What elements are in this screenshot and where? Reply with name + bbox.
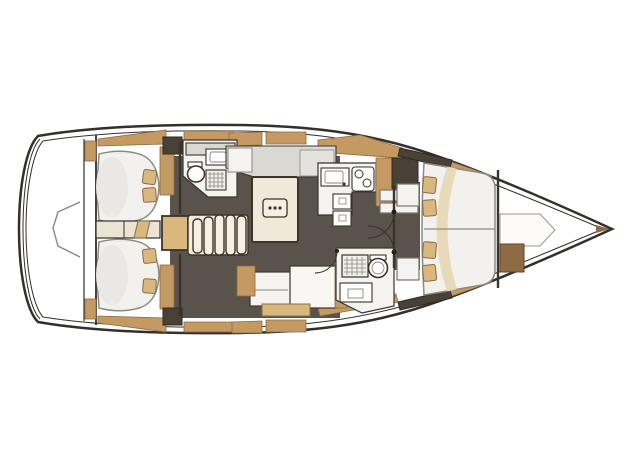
- swim-platform: [53, 135, 96, 325]
- stove: [352, 167, 374, 191]
- trim-saloon-top-2: [266, 132, 306, 144]
- yacht-deck-plan: [0, 0, 628, 471]
- stair-step: [237, 216, 246, 254]
- galley-appliance-2: [333, 211, 351, 226]
- sideboard-unit: [228, 148, 252, 172]
- stair-step: [215, 215, 224, 255]
- sofa-chaise: [290, 266, 336, 308]
- sofa-side-table: [237, 266, 255, 296]
- toilet: [188, 166, 205, 182]
- sofa-bench: [262, 304, 310, 316]
- aft-bed-starboard-shading: [96, 157, 128, 217]
- shower-grate: [206, 170, 226, 190]
- yacht-deck-plan-page: [0, 0, 628, 471]
- shower-grate: [342, 255, 368, 277]
- toilet: [369, 259, 388, 278]
- stern-locker-top: [85, 141, 96, 161]
- bow-stowage: [500, 214, 555, 272]
- aft-bed-port-shading: [96, 245, 128, 305]
- galley-appliance-1: [333, 194, 351, 209]
- cabin-divider: [96, 221, 160, 238]
- trim-saloon-bottom-1: [232, 321, 262, 333]
- pillow: [422, 176, 437, 193]
- trim-saloon-bottom-2: [266, 320, 306, 332]
- aft-cabin-starboard: [96, 137, 182, 223]
- pillow: [142, 169, 157, 185]
- stair-step: [193, 219, 202, 253]
- trim-head-bottom: [184, 322, 234, 332]
- stair-landing: [162, 216, 188, 250]
- entry-step-top: [397, 184, 419, 206]
- platform-fold-line: [53, 202, 80, 257]
- pillow: [143, 188, 157, 203]
- wardrobe-port: [160, 265, 174, 309]
- faucet: [342, 182, 345, 185]
- pillow: [422, 264, 437, 281]
- companionway-stairs: [162, 215, 248, 255]
- bottle-slot: [268, 206, 271, 209]
- stair-step: [226, 215, 235, 255]
- pillow: [422, 200, 436, 217]
- pillow: [143, 279, 157, 294]
- entry-step-bottom: [397, 258, 419, 280]
- trim-head-top: [184, 131, 234, 140]
- bottle-slot: [273, 206, 276, 209]
- pillow: [142, 248, 156, 263]
- bottle-slot: [278, 206, 281, 209]
- sink: [340, 283, 372, 302]
- bow-step-box: [500, 244, 524, 272]
- stair-step: [204, 217, 213, 255]
- aft-cabin-port: [96, 239, 182, 325]
- stern-locker-bottom: [85, 299, 96, 319]
- anchor-locker: [500, 214, 555, 246]
- pillow: [422, 242, 436, 259]
